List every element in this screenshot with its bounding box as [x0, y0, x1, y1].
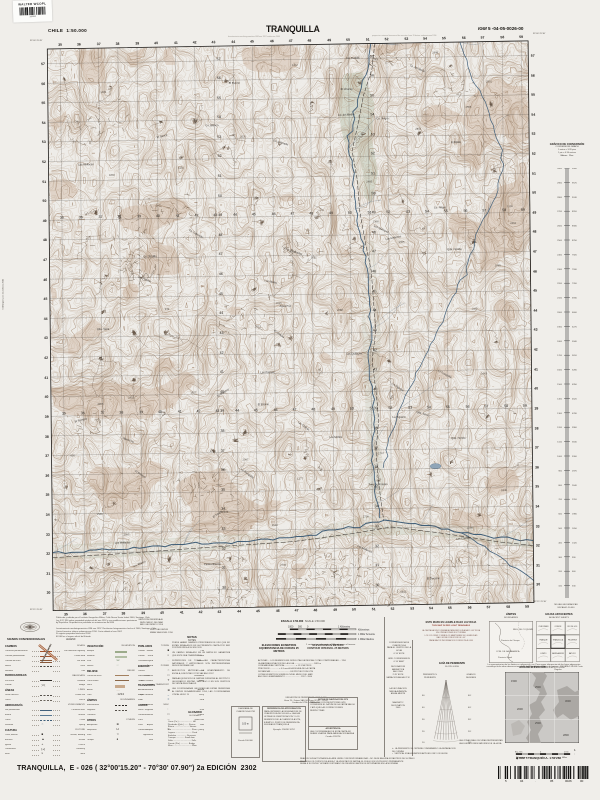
svg-text:2655: 2655 [399, 240, 405, 244]
svg-text:54: 54 [371, 112, 375, 116]
svg-text:4620: 4620 [572, 398, 578, 400]
svg-text:3000: 3000 [565, 699, 571, 703]
svg-text:36: 36 [45, 474, 49, 478]
svg-text:El Boldo: El Boldo [451, 140, 461, 144]
svg-text:43: 43 [217, 610, 221, 614]
svg-text:55: 55 [442, 36, 446, 40]
svg-text:52: 52 [388, 406, 392, 410]
svg-text:55: 55 [370, 93, 374, 97]
svg-text:3630: 3630 [572, 442, 578, 444]
svg-text:0026: 0026 [565, 779, 572, 782]
svg-text:37: 37 [535, 445, 539, 449]
svg-text:1980: 1980 [572, 514, 578, 516]
svg-text:1139: 1139 [507, 204, 513, 208]
svg-text:40: 40 [45, 395, 49, 399]
svg-text:47: 47 [43, 258, 47, 262]
svg-text:54: 54 [531, 113, 535, 117]
svg-text:36: 36 [374, 465, 378, 469]
svg-text:57: 57 [482, 208, 486, 212]
svg-text:39: 39 [137, 214, 141, 218]
svg-text:2698: 2698 [432, 50, 438, 54]
svg-text:8250: 8250 [572, 240, 578, 242]
svg-text:49: 49 [218, 213, 222, 217]
svg-text:58: 58 [502, 208, 506, 212]
svg-text:1650: 1650 [572, 528, 578, 530]
svg-text:1200: 1200 [557, 427, 563, 429]
svg-text:44: 44 [233, 213, 237, 217]
svg-text:36: 36 [77, 42, 81, 46]
svg-text:43: 43 [219, 331, 223, 335]
svg-text:7920: 7920 [572, 254, 578, 256]
svg-text:38: 38 [119, 411, 123, 415]
svg-text:56: 56 [531, 74, 535, 78]
svg-text:2495: 2495 [495, 263, 501, 267]
svg-text:1300: 1300 [557, 413, 563, 415]
svg-text:2790: 2790 [280, 563, 286, 567]
svg-text:Tres Quebradas: Tres Quebradas [368, 482, 388, 486]
svg-text:42: 42 [373, 348, 377, 352]
svg-text:34: 34 [375, 504, 379, 508]
svg-text:54: 54 [423, 37, 427, 41]
svg-text:57: 57 [487, 605, 491, 609]
svg-text:50: 50 [352, 608, 356, 612]
svg-text:3000: 3000 [557, 168, 563, 170]
svg-text:57: 57 [41, 62, 45, 66]
svg-text:05: 05 [550, 779, 554, 782]
svg-text:55: 55 [446, 405, 450, 409]
svg-text:44: 44 [533, 309, 537, 313]
svg-text:2212: 2212 [222, 510, 228, 514]
svg-text:57: 57 [217, 57, 221, 61]
svg-text:51: 51 [371, 171, 375, 175]
svg-text:4950: 4950 [572, 384, 578, 386]
svg-text:1600: 1600 [557, 370, 563, 372]
svg-text:53: 53 [410, 607, 414, 611]
svg-text:47: 47 [292, 408, 296, 412]
svg-text:41: 41 [174, 41, 178, 45]
svg-text:TRANQUILLA: TRANQUILLA [553, 638, 564, 641]
svg-text:41: 41 [180, 610, 184, 614]
svg-text:32: 32 [375, 544, 379, 548]
svg-text:2485: 2485 [366, 179, 372, 183]
svg-text:35: 35 [221, 488, 225, 492]
svg-text:49: 49 [372, 210, 376, 214]
svg-text:7260: 7260 [572, 283, 578, 285]
svg-text:700: 700 [558, 499, 562, 501]
svg-text:32: 32 [222, 547, 226, 551]
svg-text:200: 200 [558, 571, 562, 573]
svg-text:54: 54 [42, 121, 46, 125]
svg-text:50: 50 [348, 211, 352, 215]
svg-text:1 Kilómetro: 1 Kilómetro [338, 625, 351, 628]
svg-text:55: 55 [41, 101, 45, 105]
svg-text:44: 44 [231, 40, 235, 44]
svg-text:38: 38 [535, 426, 539, 430]
svg-text:42: 42 [44, 356, 48, 360]
svg-text:La Higuera: La Higuera [392, 415, 406, 419]
svg-text:31: 31 [375, 563, 379, 567]
svg-text:400: 400 [558, 542, 562, 544]
svg-text:40: 40 [158, 410, 162, 414]
svg-text:1800: 1800 [557, 341, 563, 343]
svg-text:37: 37 [374, 446, 378, 450]
svg-text:48: 48 [309, 211, 313, 215]
svg-text:39: 39 [139, 410, 143, 414]
svg-text:500: 500 [298, 625, 303, 628]
svg-text:2501: 2501 [486, 79, 492, 83]
svg-text:56: 56 [464, 209, 468, 213]
svg-text:1320: 1320 [572, 542, 578, 544]
svg-text:2736: 2736 [363, 514, 369, 518]
svg-text:54: 54 [217, 115, 221, 119]
svg-text:1900: 1900 [557, 326, 563, 328]
svg-text:52: 52 [386, 210, 390, 214]
svg-text:El Durazno: El Durazno [427, 576, 441, 580]
svg-text:COIRON: COIRON [555, 625, 563, 627]
svg-text:41: 41 [176, 214, 180, 218]
svg-text:El Chacay: El Chacay [341, 87, 354, 91]
svg-text:53: 53 [532, 132, 536, 136]
svg-text:1763: 1763 [372, 57, 378, 61]
svg-text:55: 55 [531, 93, 535, 97]
svg-text:1368: 1368 [373, 219, 379, 223]
svg-text:CUNCUMEN: CUNCUMEN [538, 625, 549, 627]
svg-text:990: 990 [572, 557, 576, 559]
svg-text:44: 44 [373, 308, 377, 312]
svg-text:1700: 1700 [557, 355, 563, 357]
svg-text:939: 939 [165, 307, 170, 311]
svg-text:48: 48 [307, 39, 311, 43]
svg-text:30°: 30° [468, 719, 471, 721]
svg-text:2565: 2565 [124, 532, 130, 536]
svg-text:Co. Negro: Co. Negro [377, 116, 390, 120]
svg-text:49: 49 [43, 219, 47, 223]
svg-text:43: 43 [534, 328, 538, 332]
svg-text:2200: 2200 [557, 283, 563, 285]
svg-text:2900: 2900 [557, 182, 563, 184]
svg-text:BATUCO: BATUCO [569, 652, 577, 655]
svg-text:56: 56 [370, 73, 374, 77]
svg-text:2800: 2800 [557, 197, 563, 199]
svg-text:45: 45 [254, 408, 258, 412]
svg-text:52: 52 [532, 152, 536, 156]
svg-text:1827: 1827 [190, 390, 196, 394]
svg-text:30: 30 [422, 719, 425, 721]
svg-text:43: 43 [212, 40, 216, 44]
svg-text:REG. DE COQUIMBO: REG. DE COQUIMBO [513, 629, 533, 631]
svg-text:52: 52 [371, 151, 375, 155]
svg-text:2300: 2300 [557, 269, 563, 271]
svg-text:1500: 1500 [557, 384, 563, 386]
svg-text:2100: 2100 [557, 298, 563, 300]
svg-text:53: 53 [404, 37, 408, 41]
svg-text:1588: 1588 [97, 512, 103, 516]
svg-text:2462: 2462 [510, 221, 516, 225]
svg-text:1485: 1485 [471, 307, 477, 311]
svg-text:53: 53 [408, 406, 412, 410]
svg-text:52: 52 [218, 154, 222, 158]
svg-text:51: 51 [42, 180, 46, 184]
svg-text:46: 46 [43, 278, 47, 282]
svg-text:47: 47 [533, 250, 537, 254]
svg-text:1643: 1643 [481, 371, 487, 375]
svg-text:50: 50 [218, 194, 222, 198]
svg-text:60: 60 [422, 695, 425, 697]
svg-text:1 Milla Terrestre: 1 Milla Terrestre [358, 633, 376, 636]
svg-text:47: 47 [372, 249, 376, 253]
svg-text:44: 44 [219, 311, 223, 315]
svg-text:2570: 2570 [240, 135, 246, 139]
svg-text:Millas: Millas [562, 757, 567, 758]
svg-text:43: 43 [44, 336, 48, 340]
svg-text:47: 47 [289, 39, 293, 43]
svg-text:48: 48 [372, 230, 376, 234]
svg-text:1612: 1612 [311, 255, 317, 259]
svg-text:42: 42 [199, 610, 203, 614]
svg-text:1400: 1400 [557, 398, 563, 400]
svg-text:30: 30 [536, 582, 540, 586]
svg-text:Las Mollacas: Las Mollacas [78, 162, 94, 166]
svg-text:45: 45 [252, 212, 256, 216]
svg-text:2970: 2970 [572, 470, 578, 472]
svg-text:39: 39 [135, 41, 139, 45]
svg-text:2000: 2000 [517, 707, 523, 711]
svg-text:33: 33 [536, 524, 540, 528]
svg-text:31: 31 [222, 566, 226, 570]
svg-text:41: 41 [178, 410, 182, 414]
svg-text:46: 46 [272, 212, 276, 216]
svg-text:47: 47 [219, 252, 223, 256]
svg-text:5280: 5280 [572, 370, 578, 372]
svg-text:52: 52 [391, 607, 395, 611]
svg-text:2700: 2700 [557, 211, 563, 213]
svg-text:42: 42 [220, 351, 224, 355]
svg-text:3960: 3960 [572, 427, 578, 429]
svg-text:Qda. Honda: Qda. Honda [451, 436, 466, 440]
svg-text:60°: 60° [468, 695, 471, 697]
svg-text:2500: 2500 [557, 240, 563, 242]
svg-text:660: 660 [572, 571, 576, 573]
svg-text:47: 47 [290, 212, 294, 216]
svg-text:2800: 2800 [563, 733, 569, 737]
svg-text:35: 35 [58, 43, 62, 47]
svg-text:44: 44 [237, 609, 241, 613]
svg-text:53: 53 [371, 132, 375, 136]
svg-text:El Espino: El Espino [229, 81, 241, 85]
svg-text:35: 35 [62, 412, 66, 416]
svg-text:51: 51 [372, 607, 376, 611]
svg-text:40: 40 [160, 611, 164, 615]
svg-text:Los Molles: Los Molles [329, 435, 342, 439]
svg-text:37: 37 [103, 612, 107, 616]
svg-text:3300: 3300 [572, 456, 578, 458]
svg-text:55: 55 [444, 209, 448, 213]
svg-text:2500: 2500 [535, 721, 541, 725]
svg-text:1830: 1830 [109, 173, 115, 177]
svg-text:59: 59 [521, 208, 525, 212]
svg-text:36: 36 [83, 612, 87, 616]
svg-text:46: 46 [276, 609, 280, 613]
svg-text:6270: 6270 [572, 326, 578, 328]
svg-text:31: 31 [536, 563, 540, 567]
svg-text:37: 37 [98, 215, 102, 219]
svg-text:40: 40 [154, 41, 158, 45]
svg-text:6600: 6600 [572, 312, 578, 314]
svg-text:38: 38 [117, 215, 121, 219]
svg-text:2000: 2000 [557, 312, 563, 314]
svg-text:44: 44 [235, 409, 239, 413]
svg-text:45: 45 [533, 289, 537, 293]
svg-text:45: 45 [44, 297, 48, 301]
svg-text:49: 49 [329, 211, 333, 215]
svg-text:9570: 9570 [572, 182, 578, 184]
svg-text:48: 48 [533, 230, 537, 234]
svg-text:56: 56 [468, 606, 472, 610]
svg-text:35: 35 [46, 493, 50, 497]
svg-text:46: 46 [372, 269, 376, 273]
svg-text:36: 36 [81, 411, 85, 415]
svg-text:2310: 2310 [572, 499, 578, 501]
svg-text:41: 41 [373, 367, 377, 371]
svg-text:2856: 2856 [97, 402, 103, 406]
svg-text:El Espino: El Espino [258, 402, 270, 406]
svg-text:55: 55 [217, 96, 221, 100]
svg-text:8580: 8580 [572, 226, 578, 228]
svg-text:2088: 2088 [337, 308, 343, 312]
svg-text:59: 59 [519, 35, 523, 39]
svg-text:100 m: 100 m [242, 723, 249, 726]
svg-text:600: 600 [558, 514, 562, 516]
svg-text:04: 04 [520, 779, 524, 782]
svg-text:Kilómetros: Kilómetros [358, 628, 370, 631]
svg-text:42: 42 [194, 213, 198, 217]
svg-text:35: 35 [535, 484, 539, 488]
svg-text:20: 20 [422, 731, 425, 733]
svg-text:1767: 1767 [378, 451, 384, 455]
svg-text:40: 40 [373, 387, 377, 391]
svg-text:Los Quillayes: Los Quillayes [346, 351, 363, 355]
svg-text:54: 54 [427, 405, 431, 409]
svg-text:55: 55 [448, 606, 452, 610]
svg-text:8910: 8910 [572, 211, 578, 213]
svg-text:Piedra Blanca: Piedra Blanca [204, 562, 221, 566]
svg-text:5610: 5610 [572, 355, 578, 357]
svg-text:34: 34 [535, 504, 539, 508]
svg-text:50: 50 [350, 407, 354, 411]
svg-text:1 Milla Náutica: 1 Milla Náutica [358, 638, 374, 641]
svg-text:38: 38 [374, 426, 378, 430]
svg-text:2556: 2556 [465, 105, 471, 109]
svg-text:45: 45 [256, 609, 260, 613]
svg-text:50: 50 [371, 191, 375, 195]
svg-text:45: 45 [250, 39, 254, 43]
svg-text:37: 37 [45, 454, 49, 458]
svg-text:49: 49 [327, 38, 331, 42]
svg-text:39: 39 [374, 406, 378, 410]
svg-text:48: 48 [218, 233, 222, 237]
svg-text:9900: 9900 [572, 168, 578, 170]
svg-text:1942: 1942 [400, 590, 406, 594]
svg-text:00: 00 [580, 779, 584, 782]
svg-text:37: 37 [101, 411, 105, 415]
svg-text:TRANQUE: TRANQUE [539, 638, 548, 641]
svg-text:2097: 2097 [243, 457, 249, 461]
svg-text:LLIMPO: LLIMPO [540, 653, 547, 655]
svg-text:45: 45 [219, 292, 223, 296]
svg-text:59: 59 [523, 404, 527, 408]
svg-text:40°: 40° [468, 707, 471, 709]
svg-text:1277: 1277 [297, 476, 303, 480]
svg-text:58: 58 [504, 404, 508, 408]
svg-text:38: 38 [45, 435, 49, 439]
svg-text:57: 57 [481, 36, 485, 40]
svg-text:50: 50 [346, 38, 350, 42]
svg-text:37: 37 [97, 42, 101, 46]
svg-text:7590: 7590 [572, 269, 578, 271]
svg-text:48: 48 [43, 238, 47, 242]
svg-text:0: 0 [307, 625, 309, 628]
svg-text:5940: 5940 [572, 341, 578, 343]
svg-text:2400: 2400 [557, 254, 563, 256]
svg-text:2298: 2298 [467, 526, 473, 530]
svg-text:48: 48 [313, 608, 317, 612]
svg-text:1000: 1000 [557, 456, 563, 458]
svg-text:41: 41 [534, 368, 538, 372]
svg-text:1500: 1500 [511, 679, 517, 683]
svg-text:59: 59 [525, 605, 529, 609]
svg-text:42: 42 [534, 348, 538, 352]
svg-text:2922: 2922 [272, 523, 278, 527]
svg-text:53: 53 [217, 135, 221, 139]
svg-text:PELDEHUE: PELDEHUE [568, 639, 578, 641]
svg-text:33: 33 [221, 527, 225, 531]
svg-text:56: 56 [466, 405, 470, 409]
svg-text:10: 10 [422, 742, 425, 744]
svg-text:926: 926 [70, 453, 75, 457]
svg-text:30: 30 [375, 583, 379, 587]
svg-text:40: 40 [422, 707, 425, 709]
svg-text:30: 30 [222, 586, 226, 590]
svg-text:33: 33 [375, 524, 379, 528]
svg-text:32: 32 [536, 543, 540, 547]
svg-text:2513: 2513 [255, 324, 261, 328]
svg-text:9240: 9240 [572, 197, 578, 199]
svg-text:1000: 1000 [288, 625, 294, 628]
svg-text:300: 300 [558, 557, 562, 559]
svg-text:1151: 1151 [178, 166, 184, 170]
svg-text:Provincia de Choapa: Provincia de Choapa [501, 640, 520, 642]
svg-text:47: 47 [295, 608, 299, 612]
svg-text:40: 40 [534, 387, 538, 391]
svg-text:43: 43 [373, 328, 377, 332]
svg-text:46: 46 [219, 272, 223, 276]
svg-text:48: 48 [311, 407, 315, 411]
svg-text:1723: 1723 [210, 449, 216, 453]
svg-text:800: 800 [558, 485, 562, 487]
svg-text:58: 58 [500, 35, 504, 39]
svg-text:46: 46 [270, 39, 274, 43]
svg-text:1433: 1433 [276, 301, 282, 305]
svg-text:56: 56 [217, 76, 221, 80]
svg-text:50: 50 [42, 199, 46, 203]
svg-text:Co. Negro: Co. Negro [434, 205, 447, 209]
svg-text:46: 46 [274, 408, 278, 412]
svg-text:56: 56 [462, 36, 466, 40]
svg-text:2802: 2802 [415, 127, 421, 131]
svg-text:42: 42 [193, 40, 197, 44]
svg-text:36: 36 [221, 468, 225, 472]
svg-text:SANTA AUROR: SANTA AUROR [552, 652, 565, 655]
